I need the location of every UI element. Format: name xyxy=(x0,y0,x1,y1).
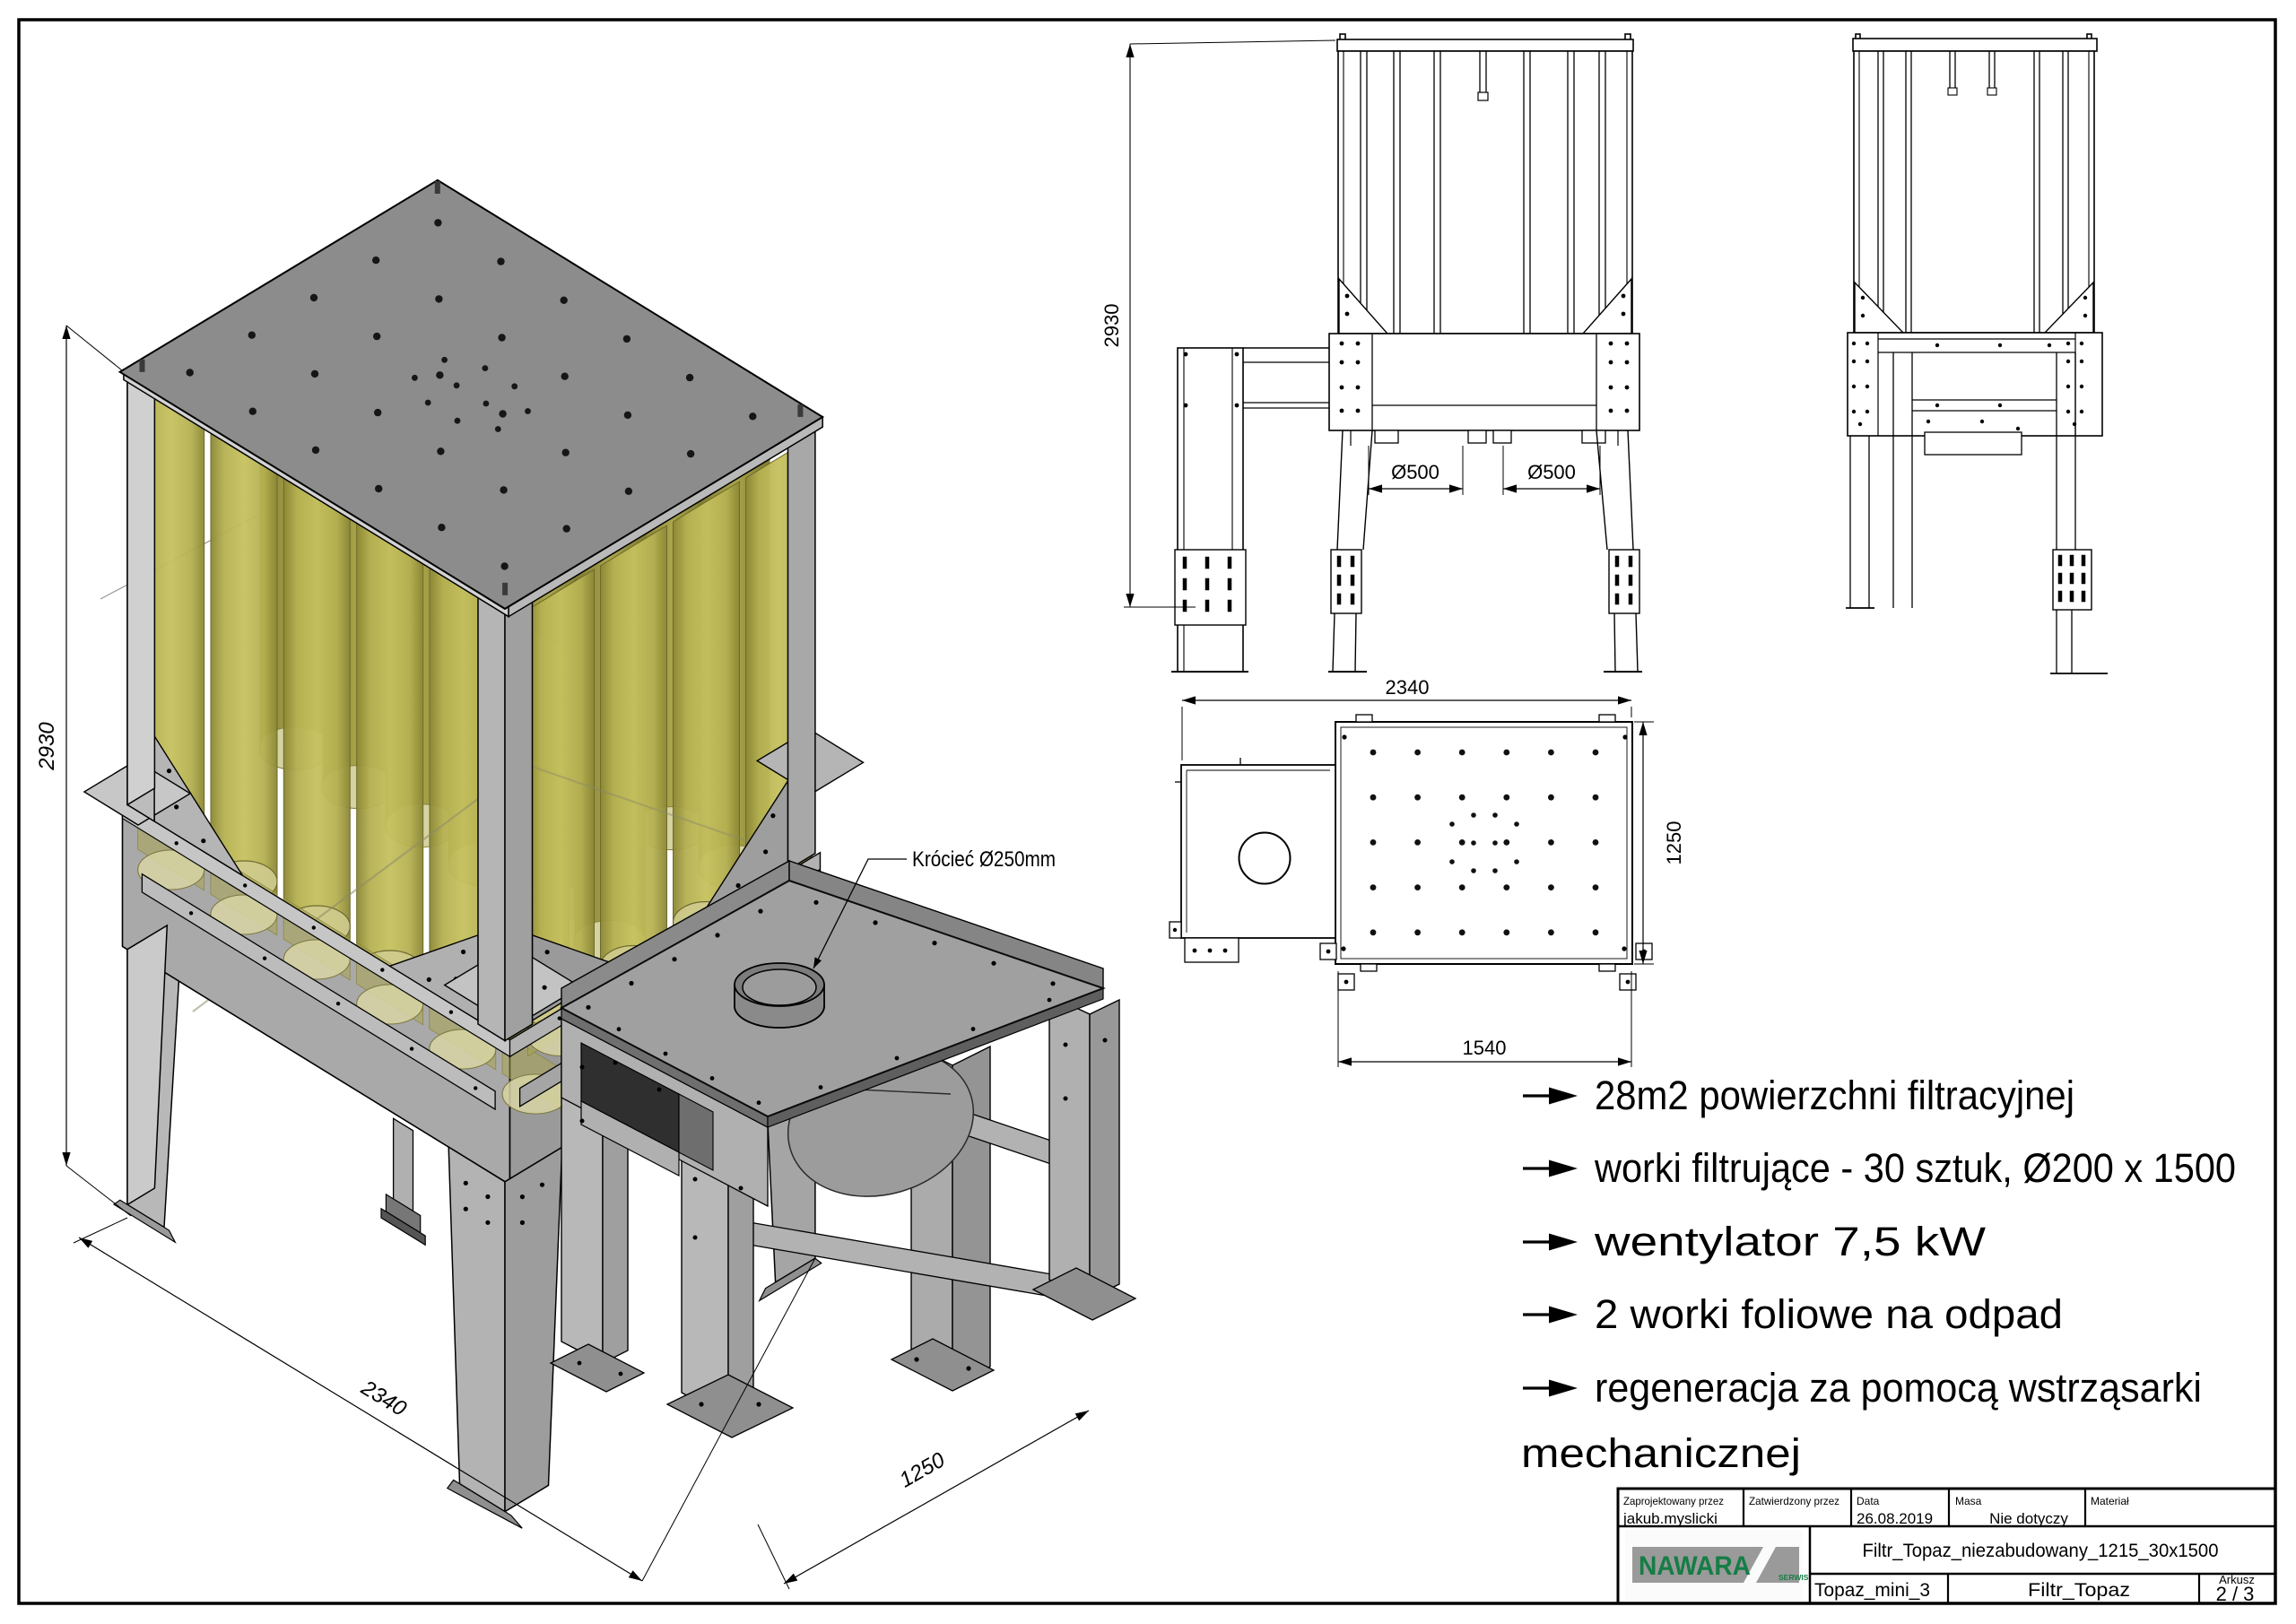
svg-text:Masa: Masa xyxy=(1955,1495,1982,1507)
svg-text:26.08.2019: 26.08.2019 xyxy=(1857,1510,1933,1527)
svg-text:regeneracja za pomocą wstrząsa: regeneracja za pomocą wstrząsarki xyxy=(1595,1365,2202,1411)
svg-text:Ø500: Ø500 xyxy=(1527,461,1576,483)
svg-text:worki filtrujące - 30 sztuk, Ø: worki filtrujące - 30 sztuk, Ø200 x 1500 xyxy=(1594,1145,2236,1191)
svg-text:2930: 2930 xyxy=(1100,304,1123,348)
svg-text:Zaprojektowany przez: Zaprojektowany przez xyxy=(1623,1495,1724,1507)
svg-text:Materiał: Materiał xyxy=(2091,1495,2129,1507)
svg-text:Nie dotyczy: Nie dotyczy xyxy=(1989,1510,2068,1527)
svg-text:2930: 2930 xyxy=(35,722,59,771)
svg-text:Ø500: Ø500 xyxy=(1391,461,1439,483)
svg-text:SERWIS: SERWIS xyxy=(1779,1573,1809,1582)
svg-text:mechanicznej: mechanicznej xyxy=(1521,1430,1801,1476)
svg-text:jakub.myslicki: jakub.myslicki xyxy=(1622,1510,1718,1527)
svg-text:2340: 2340 xyxy=(1386,676,1430,699)
svg-text:2 worki foliowe na odpad: 2 worki foliowe na odpad xyxy=(1595,1291,2063,1337)
svg-text:Zatwierdzony przez: Zatwierdzony przez xyxy=(1749,1495,1839,1507)
svg-text:2 / 3: 2 / 3 xyxy=(2216,1583,2255,1605)
svg-text:28m2 powierzchni filtracyjnej: 28m2 powierzchni filtracyjnej xyxy=(1595,1073,2074,1118)
svg-text:wentylator 7,5 kW: wentylator 7,5 kW xyxy=(1594,1219,1987,1264)
svg-text:Filtr_Topaz_niezabudowany_1215: Filtr_Topaz_niezabudowany_1215_30x1500 xyxy=(1863,1541,2219,1561)
svg-text:NAWARA: NAWARA xyxy=(1639,1551,1751,1581)
svg-text:Filtr_Topaz: Filtr_Topaz xyxy=(2028,1580,2130,1601)
svg-text:Data: Data xyxy=(1857,1495,1880,1507)
svg-text:Topaz_mini_3: Topaz_mini_3 xyxy=(1814,1580,1930,1601)
svg-text:Krócieć Ø250mm: Krócieć Ø250mm xyxy=(912,847,1056,872)
svg-text:1540: 1540 xyxy=(1463,1037,1507,1059)
svg-text:1250: 1250 xyxy=(1663,821,1685,865)
